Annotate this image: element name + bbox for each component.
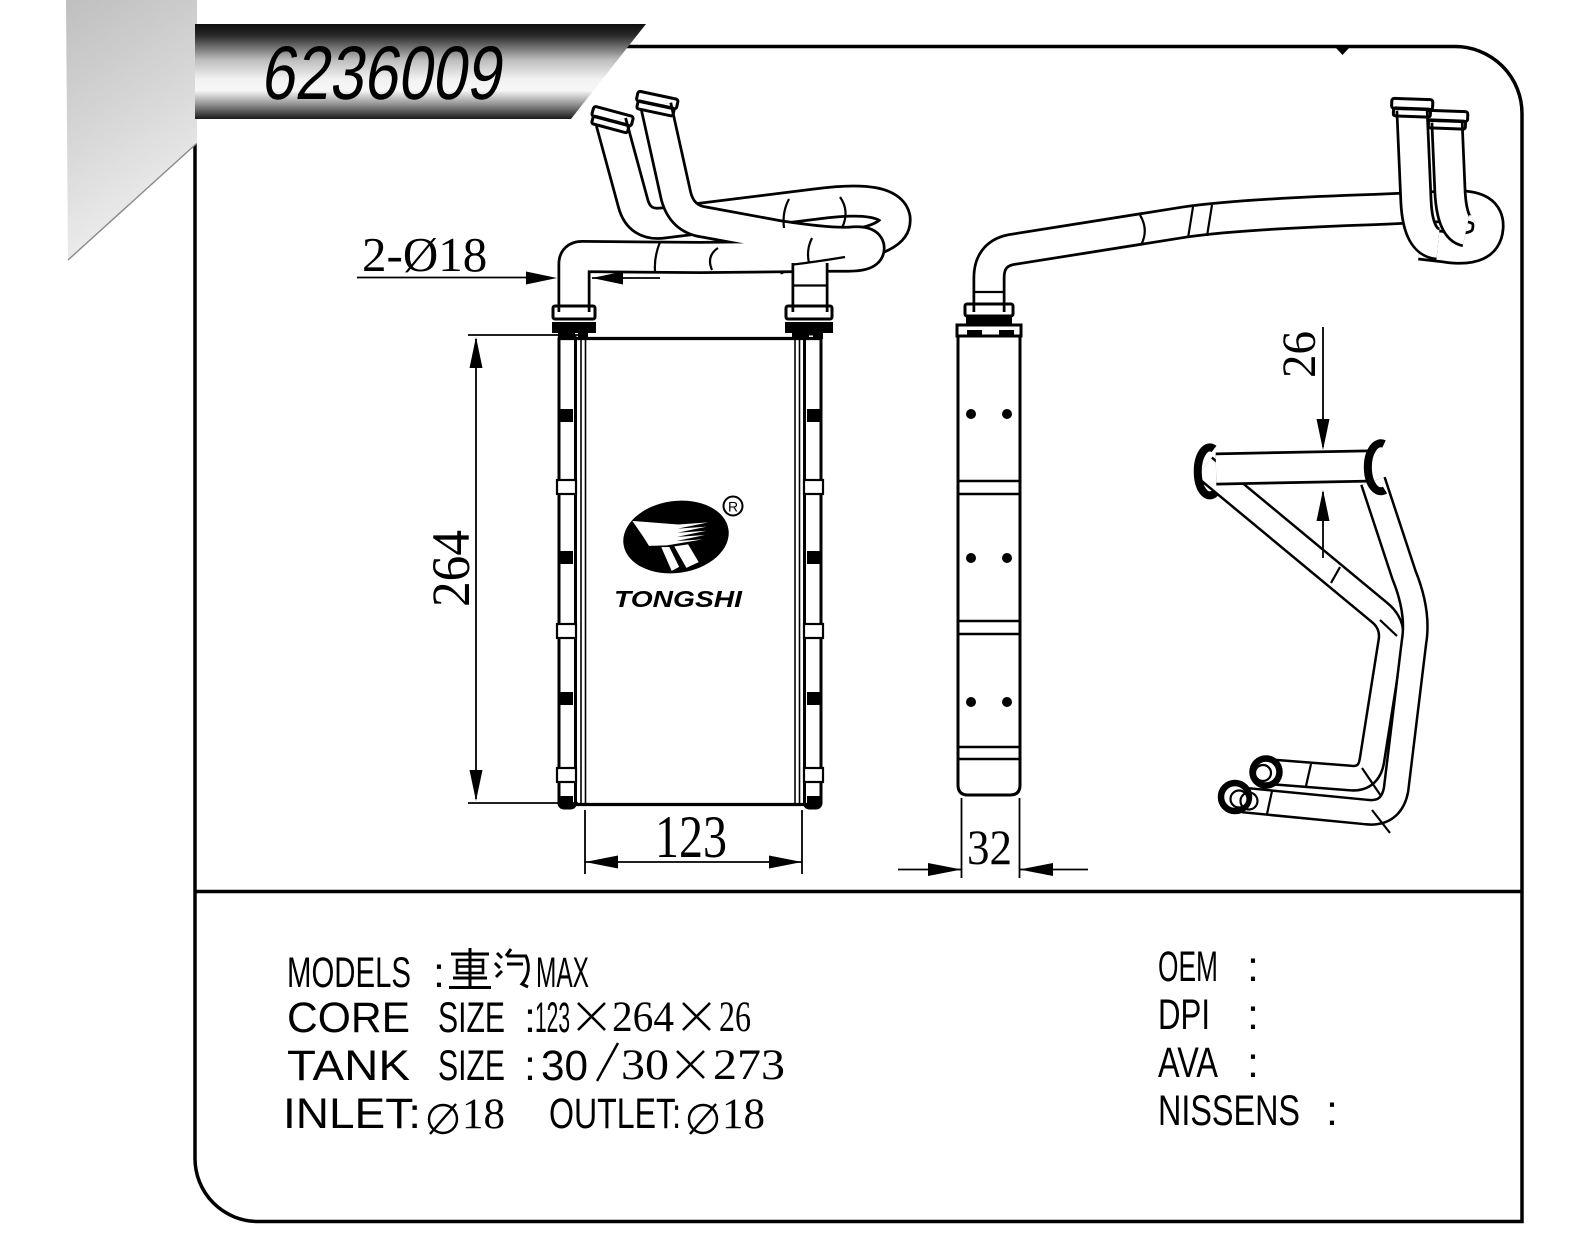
svg-text:SIZE: SIZE — [438, 1042, 505, 1090]
svg-text:26: 26 — [1273, 331, 1326, 378]
svg-text:CORE: CORE — [287, 994, 410, 1042]
svg-text::: : — [433, 949, 445, 997]
svg-text::: : — [1247, 943, 1259, 991]
svg-text:264: 264 — [421, 530, 481, 607]
svg-text:SIZE: SIZE — [438, 994, 505, 1042]
svg-text:OUTLET:: OUTLET: — [549, 1090, 681, 1138]
svg-text:30: 30 — [541, 1042, 588, 1090]
svg-text:INLET:: INLET: — [283, 1090, 421, 1138]
svg-text:OEM: OEM — [1158, 943, 1218, 991]
svg-text::: : — [524, 1042, 536, 1090]
svg-text:6236009: 6236009 — [257, 31, 510, 115]
svg-text:MODELS: MODELS — [287, 949, 411, 997]
svg-text:26: 26 — [719, 994, 751, 1041]
svg-text::: : — [1247, 1039, 1259, 1087]
svg-text:123: 123 — [655, 804, 727, 870]
svg-text:R: R — [728, 499, 738, 515]
svg-text:DPI: DPI — [1158, 991, 1210, 1039]
svg-text:2-Ø18: 2-Ø18 — [362, 227, 487, 282]
svg-text:18: 18 — [462, 1091, 505, 1138]
svg-text:18: 18 — [722, 1091, 765, 1138]
svg-text::: : — [1326, 1087, 1338, 1135]
svg-text:264: 264 — [612, 994, 674, 1041]
svg-text:273: 273 — [713, 1042, 785, 1089]
svg-text:30: 30 — [621, 1042, 669, 1089]
svg-text:123: 123 — [535, 994, 570, 1042]
svg-text::: : — [1247, 991, 1259, 1039]
svg-text:32: 32 — [967, 819, 1012, 875]
svg-text:MAX: MAX — [536, 949, 589, 997]
svg-text:TONGSHI: TONGSHI — [614, 586, 743, 612]
svg-text:AVA: AVA — [1158, 1039, 1218, 1087]
svg-text:NISSENS: NISSENS — [1158, 1087, 1300, 1135]
svg-text:TANK: TANK — [287, 1042, 410, 1090]
